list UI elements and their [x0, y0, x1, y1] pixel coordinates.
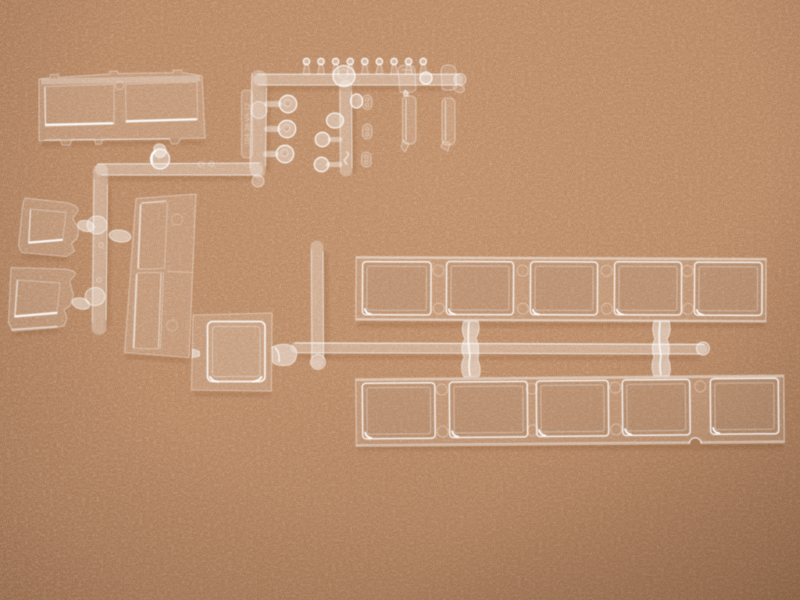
svg-text:104-38-VA-12: 104-38-VA-12	[245, 103, 252, 145]
